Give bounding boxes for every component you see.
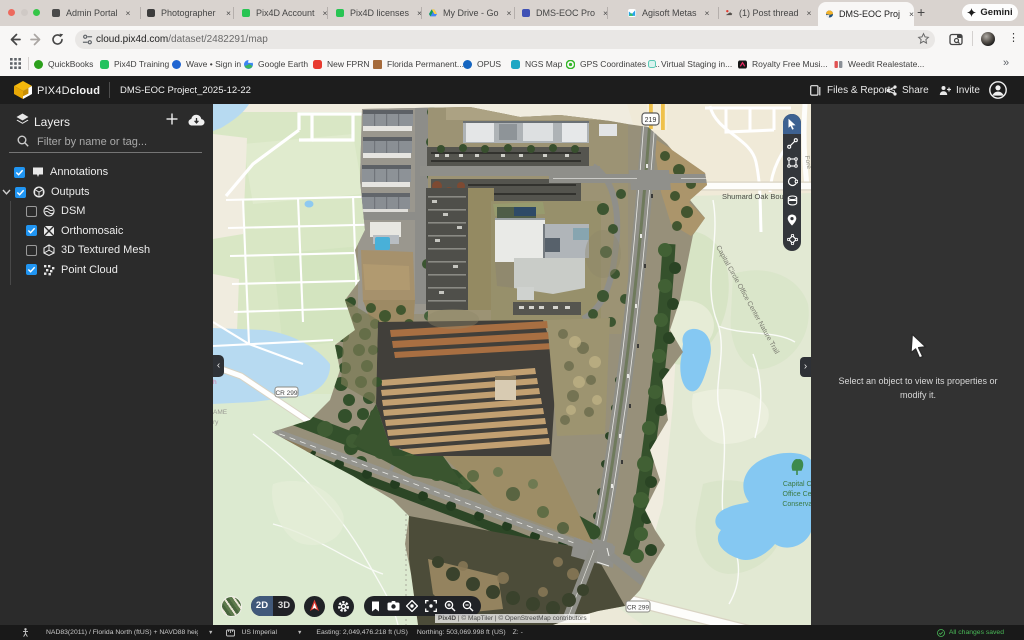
svg-text:Shumard Oak Boul: Shumard Oak Boul <box>722 192 786 201</box>
svg-text:CR 299: CR 299 <box>627 605 649 612</box>
svg-text:CR 299: CR 299 <box>275 390 297 397</box>
svg-text:Office Cen: Office Cen <box>783 491 811 498</box>
svg-text:Capital Ci: Capital Ci <box>783 481 811 488</box>
svg-text:Conservatio: Conservatio <box>782 501 811 508</box>
svg-text:h: h <box>213 379 217 386</box>
svg-text:219: 219 <box>645 117 657 124</box>
svg-text:AME: AME <box>213 409 228 416</box>
svg-text:ry: ry <box>213 419 219 426</box>
